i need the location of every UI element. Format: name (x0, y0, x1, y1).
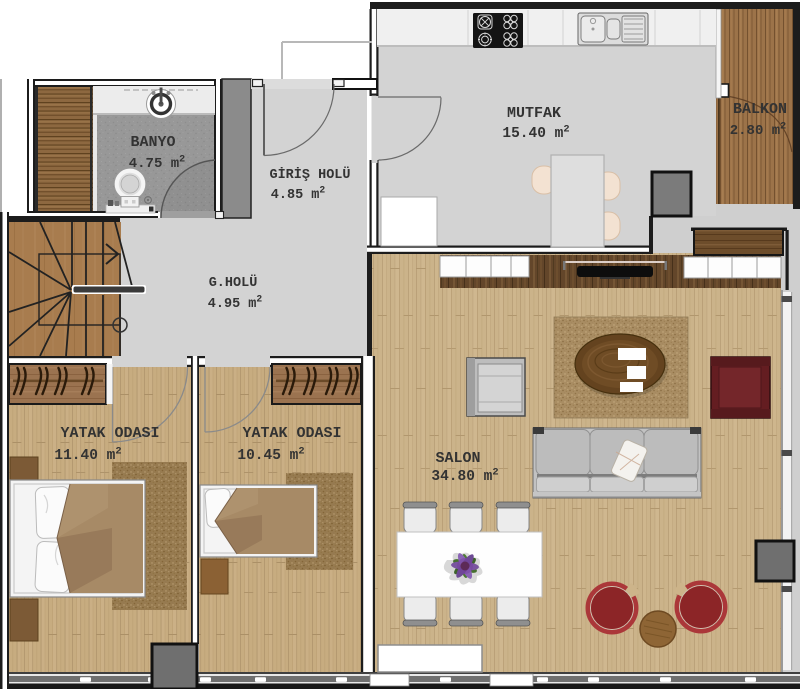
svg-text:YATAK ODASI: YATAK ODASI (60, 425, 159, 442)
svg-text:BANYO: BANYO (130, 134, 175, 151)
svg-text:MUTFAK: MUTFAK (507, 105, 561, 122)
svg-text:4.85 m2: 4.85 m2 (271, 185, 326, 204)
svg-text:BALKON: BALKON (733, 101, 787, 118)
svg-text:15.40 m2: 15.40 m2 (502, 124, 569, 143)
svg-text:G.HOLÜ: G.HOLÜ (209, 274, 258, 291)
svg-text:2.80 m2: 2.80 m2 (730, 122, 786, 140)
svg-text:4.75 m2: 4.75 m2 (129, 155, 185, 173)
svg-text:SALON: SALON (435, 450, 480, 467)
svg-text:11.40 m2: 11.40 m2 (54, 446, 121, 465)
svg-text:GİRİŞ HOLÜ: GİRİŞ HOLÜ (269, 166, 350, 183)
svg-text:10.45 m2: 10.45 m2 (237, 446, 304, 465)
svg-text:34.80 m2: 34.80 m2 (431, 467, 498, 486)
svg-text:YATAK ODASI: YATAK ODASI (242, 425, 341, 442)
svg-text:4.95 m2: 4.95 m2 (208, 294, 263, 313)
